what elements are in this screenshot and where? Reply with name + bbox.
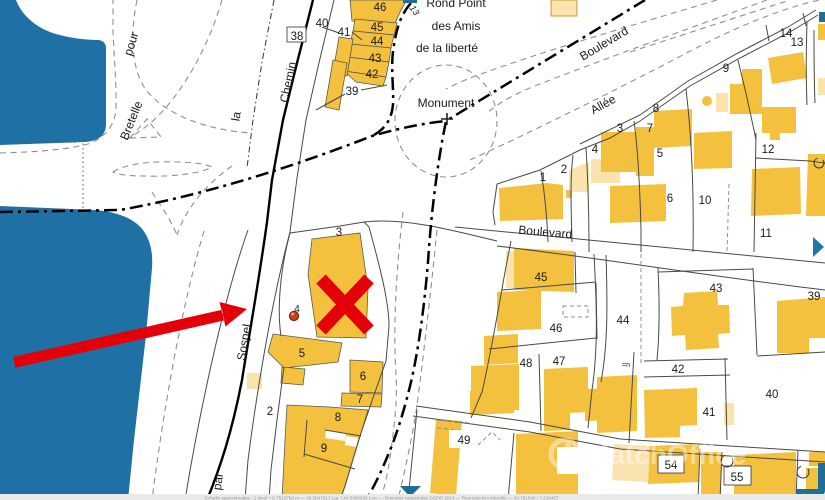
svg-text:10: 10 xyxy=(699,195,712,207)
svg-text:des Amis: des Amis xyxy=(432,19,481,33)
svg-text:=n: =n xyxy=(622,362,630,369)
svg-text:43: 43 xyxy=(369,53,382,65)
svg-text:4: 4 xyxy=(592,144,599,156)
svg-text:13: 13 xyxy=(791,37,804,49)
svg-text:43: 43 xyxy=(710,283,723,295)
svg-text:55: 55 xyxy=(731,472,744,484)
svg-text:49: 49 xyxy=(458,435,471,447)
svg-text:44: 44 xyxy=(617,315,630,327)
svg-text:39: 39 xyxy=(808,291,821,303)
svg-text:11: 11 xyxy=(760,228,772,240)
svg-text:41: 41 xyxy=(703,407,716,419)
svg-text:6: 6 xyxy=(360,371,366,383)
svg-text:2: 2 xyxy=(561,164,567,176)
svg-text:48: 48 xyxy=(520,358,533,370)
svg-text:46: 46 xyxy=(374,2,387,14)
svg-text:42: 42 xyxy=(672,364,685,376)
svg-text:38: 38 xyxy=(291,31,304,43)
svg-text:8: 8 xyxy=(653,103,659,115)
svg-text:39: 39 xyxy=(346,86,359,98)
svg-text:42: 42 xyxy=(366,69,379,81)
svg-text:Monument: Monument xyxy=(418,96,475,110)
svg-text:5: 5 xyxy=(657,148,663,160)
svg-text:47: 47 xyxy=(553,356,566,368)
svg-text:Rond Point: Rond Point xyxy=(426,0,486,10)
svg-text:41: 41 xyxy=(338,27,351,39)
svg-text:5: 5 xyxy=(299,348,305,360)
svg-text:8: 8 xyxy=(335,412,341,424)
svg-text:Echelle approximative : 1 pixe: Echelle approximative : 1 pixel = 0.7518… xyxy=(205,495,559,500)
svg-text:40: 40 xyxy=(316,18,329,30)
svg-text:9: 9 xyxy=(723,63,729,75)
svg-text:par: par xyxy=(210,472,226,491)
svg-text:3: 3 xyxy=(617,123,623,135)
svg-text:9: 9 xyxy=(321,443,327,455)
svg-text:7: 7 xyxy=(357,394,363,406)
svg-text:40: 40 xyxy=(766,389,779,401)
svg-text:45: 45 xyxy=(535,272,548,284)
svg-text:44: 44 xyxy=(371,36,384,48)
svg-text:46: 46 xyxy=(550,323,563,335)
svg-text:12: 12 xyxy=(762,144,775,156)
svg-text:MatchOffice: MatchOffice xyxy=(586,439,746,470)
svg-text:de la liberté: de la liberté xyxy=(416,41,478,55)
svg-text:6: 6 xyxy=(667,193,673,205)
svg-text:1: 1 xyxy=(540,172,546,184)
svg-text:2: 2 xyxy=(267,406,273,418)
svg-text:7: 7 xyxy=(647,123,653,135)
svg-text:3: 3 xyxy=(336,227,342,239)
svg-text:45: 45 xyxy=(371,22,384,34)
